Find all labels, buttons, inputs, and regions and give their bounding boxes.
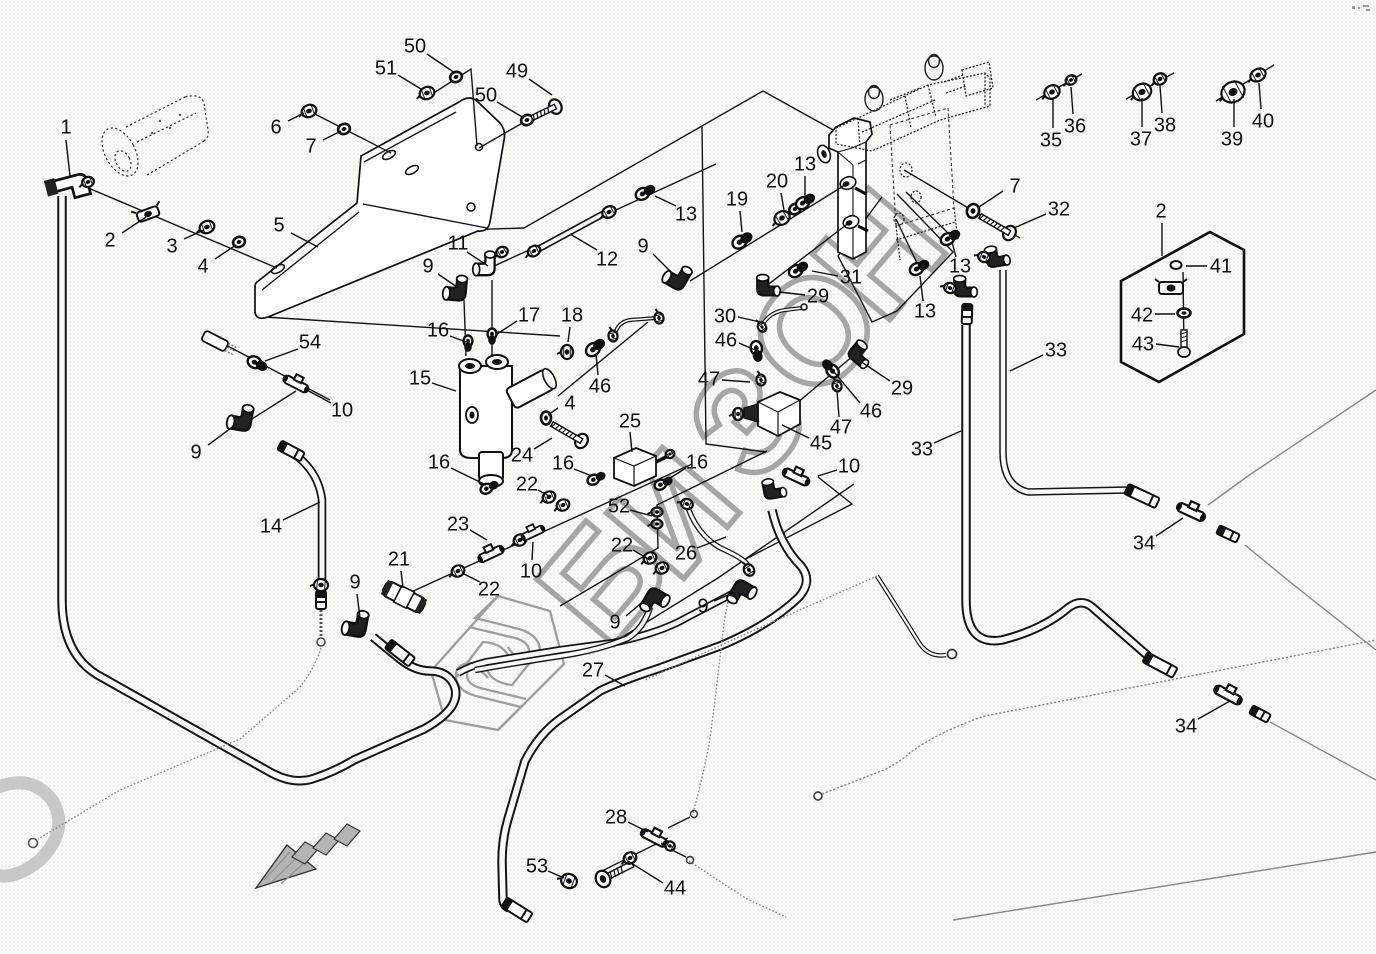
svg-text:22: 22 bbox=[611, 535, 633, 557]
svg-text:16: 16 bbox=[428, 452, 450, 474]
svg-text:9: 9 bbox=[609, 612, 620, 634]
svg-text:21: 21 bbox=[388, 549, 410, 571]
svg-text:9: 9 bbox=[349, 572, 360, 594]
svg-text:4: 4 bbox=[564, 393, 575, 415]
svg-text:10: 10 bbox=[520, 561, 542, 583]
svg-text:53: 53 bbox=[526, 856, 548, 878]
svg-text:19: 19 bbox=[726, 189, 748, 211]
svg-text:30: 30 bbox=[714, 306, 736, 328]
svg-text:9: 9 bbox=[697, 596, 708, 618]
svg-text:16: 16 bbox=[686, 452, 708, 474]
svg-text:32: 32 bbox=[1048, 199, 1070, 221]
svg-text:33: 33 bbox=[1045, 340, 1067, 362]
svg-text:2: 2 bbox=[1155, 201, 1166, 223]
svg-text:52: 52 bbox=[608, 496, 630, 518]
svg-text:34: 34 bbox=[1175, 716, 1197, 738]
svg-text:31: 31 bbox=[840, 267, 862, 289]
svg-text:27: 27 bbox=[582, 660, 604, 682]
svg-text:16: 16 bbox=[552, 453, 574, 475]
svg-text:5: 5 bbox=[273, 215, 284, 237]
svg-text:50: 50 bbox=[475, 85, 497, 107]
svg-text:45: 45 bbox=[810, 433, 832, 455]
svg-text:4: 4 bbox=[197, 256, 208, 278]
svg-text:13: 13 bbox=[949, 256, 971, 278]
svg-text:10: 10 bbox=[838, 456, 860, 478]
svg-text:35: 35 bbox=[1040, 130, 1062, 152]
svg-text:22: 22 bbox=[516, 474, 538, 496]
svg-text:25: 25 bbox=[619, 411, 641, 433]
svg-text:37: 37 bbox=[1130, 129, 1152, 151]
svg-text:39: 39 bbox=[1221, 129, 1243, 151]
svg-text:7: 7 bbox=[1009, 176, 1020, 198]
svg-text:34: 34 bbox=[1133, 533, 1155, 555]
svg-text:42: 42 bbox=[1131, 305, 1153, 327]
svg-text:43: 43 bbox=[1132, 334, 1154, 356]
svg-text:16: 16 bbox=[427, 320, 449, 342]
svg-text:40: 40 bbox=[1252, 111, 1274, 133]
svg-text:22: 22 bbox=[478, 579, 500, 601]
svg-text:13: 13 bbox=[794, 154, 816, 176]
svg-text:11: 11 bbox=[448, 233, 469, 255]
svg-text:44: 44 bbox=[664, 878, 686, 900]
svg-text:54: 54 bbox=[299, 332, 321, 354]
svg-text:46: 46 bbox=[860, 401, 882, 423]
svg-text:13: 13 bbox=[675, 204, 697, 226]
svg-text:46: 46 bbox=[589, 376, 611, 398]
svg-text:9: 9 bbox=[190, 442, 201, 464]
svg-text:46: 46 bbox=[715, 330, 737, 352]
svg-text:29: 29 bbox=[807, 286, 829, 308]
svg-text:24: 24 bbox=[511, 445, 533, 467]
svg-text:28: 28 bbox=[605, 807, 627, 829]
svg-text:9: 9 bbox=[637, 236, 648, 258]
svg-text:51: 51 bbox=[375, 58, 397, 80]
svg-text:6: 6 bbox=[270, 117, 281, 139]
svg-text:36: 36 bbox=[1064, 116, 1086, 138]
svg-text:10: 10 bbox=[331, 400, 353, 422]
svg-text:33: 33 bbox=[911, 439, 933, 461]
svg-text:47: 47 bbox=[830, 417, 852, 439]
svg-text:23: 23 bbox=[447, 514, 469, 536]
svg-text:38: 38 bbox=[1154, 115, 1176, 137]
svg-text:20: 20 bbox=[766, 171, 788, 193]
svg-text:13: 13 bbox=[914, 301, 936, 323]
svg-text:41: 41 bbox=[1210, 256, 1232, 278]
svg-text:50: 50 bbox=[404, 36, 426, 58]
svg-text:9: 9 bbox=[422, 256, 433, 278]
svg-text:47: 47 bbox=[698, 369, 720, 391]
svg-text:2: 2 bbox=[104, 230, 115, 252]
svg-text:49: 49 bbox=[506, 61, 528, 83]
svg-text:29: 29 bbox=[891, 378, 913, 400]
svg-text:1: 1 bbox=[60, 117, 71, 139]
svg-text:14: 14 bbox=[260, 516, 282, 538]
svg-text:15: 15 bbox=[409, 368, 431, 390]
svg-text:17: 17 bbox=[518, 305, 540, 327]
svg-text:3: 3 bbox=[166, 236, 177, 258]
svg-text:18: 18 bbox=[561, 305, 583, 327]
svg-text:7: 7 bbox=[305, 136, 316, 158]
svg-text:12: 12 bbox=[596, 249, 618, 271]
svg-text:26: 26 bbox=[675, 543, 697, 565]
